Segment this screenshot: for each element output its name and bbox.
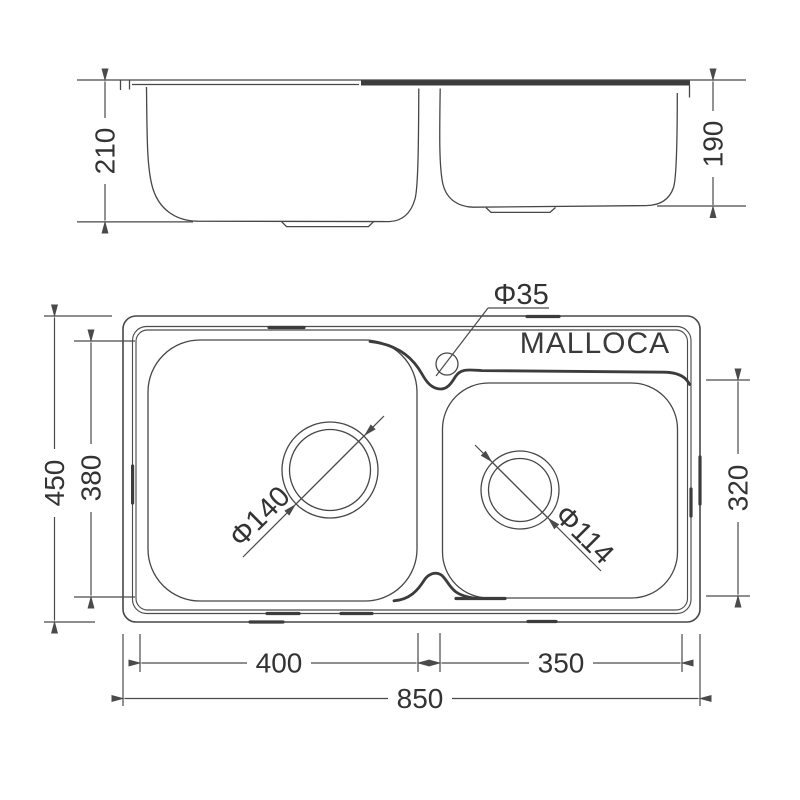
dim-label-350: 350 bbox=[538, 648, 585, 679]
plan-view: Φ35 MALLOCA Φ140 Φ114 450 bbox=[39, 279, 754, 714]
dim-label-400: 400 bbox=[256, 648, 303, 679]
dim-label-850: 850 bbox=[397, 683, 444, 714]
dim-label-380-group: 380 bbox=[76, 444, 107, 512]
dim-label-400-group: 400 bbox=[247, 648, 311, 679]
dim-label-210-group: 210 bbox=[90, 118, 121, 184]
bowl-divider-curve bbox=[394, 573, 482, 601]
right-bowl-outline bbox=[443, 383, 678, 598]
left-bowl-section-outline bbox=[147, 87, 419, 222]
left-drain-label: Φ140 bbox=[223, 480, 296, 553]
left-drain-arrow-2 bbox=[296, 470, 330, 504]
drawing-canvas: 210 190 Φ35 M bbox=[0, 0, 800, 800]
right-bowl-section-outline bbox=[440, 89, 678, 208]
faucet-hole-label: Φ35 bbox=[493, 279, 548, 311]
dim-label-320-group: 320 bbox=[723, 454, 754, 522]
dim-label-450-group: 450 bbox=[39, 449, 70, 517]
left-drain-arrow-1 bbox=[330, 436, 364, 470]
dim-label-190-group: 190 bbox=[698, 111, 729, 177]
right-drain-label: Φ114 bbox=[548, 499, 620, 571]
dim-label-850-group: 850 bbox=[388, 683, 452, 714]
dim-label-320: 320 bbox=[723, 465, 754, 512]
sink-technical-drawing: 210 190 Φ35 M bbox=[0, 0, 800, 800]
dim-label-210: 210 bbox=[90, 128, 121, 175]
right-drain-label-group: Φ114 bbox=[548, 499, 620, 571]
side-view: 210 190 bbox=[77, 80, 746, 227]
right-drain-arrow-2 bbox=[520, 490, 548, 518]
dim-label-190: 190 bbox=[698, 121, 729, 168]
faucet-leader-line bbox=[436, 308, 488, 376]
brand-logo-text: MALLOCA bbox=[520, 327, 670, 360]
dim-label-350-group: 350 bbox=[529, 648, 593, 679]
left-bowl-foot bbox=[282, 222, 374, 227]
right-bowl-foot bbox=[486, 208, 556, 213]
sink-outer-rim bbox=[123, 316, 700, 622]
right-drain-arrow-1 bbox=[492, 462, 520, 490]
left-drain-label-group: Φ140 bbox=[223, 480, 296, 553]
dim-label-380: 380 bbox=[76, 455, 107, 502]
dim-label-450: 450 bbox=[39, 460, 70, 507]
